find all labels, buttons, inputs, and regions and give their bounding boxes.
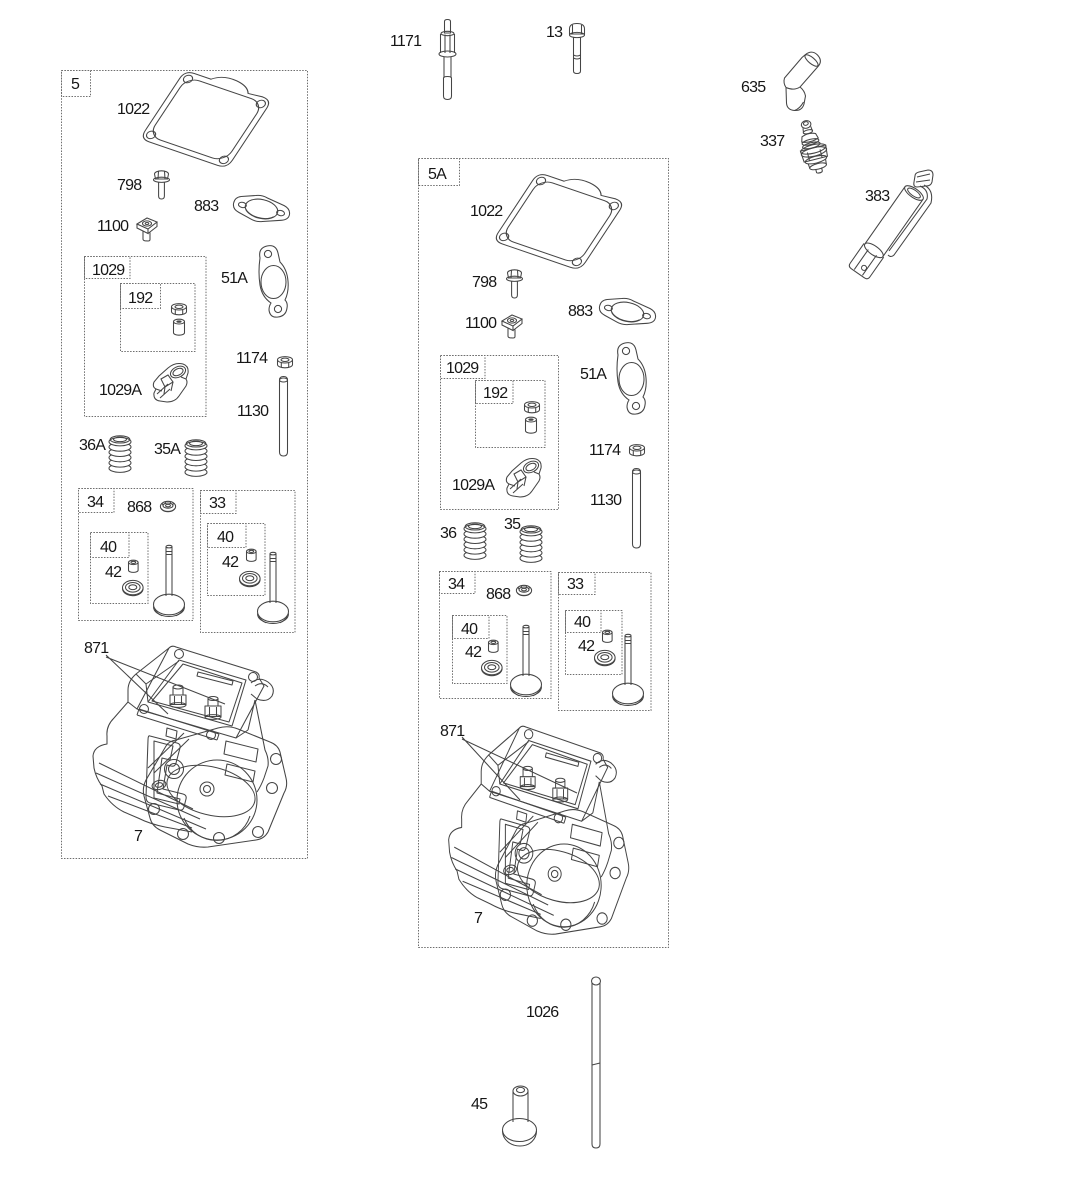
svg-text:1174: 1174 <box>236 350 268 367</box>
svg-text:1029A: 1029A <box>99 382 142 399</box>
svg-text:868: 868 <box>486 586 511 603</box>
svg-text:383: 383 <box>865 188 890 205</box>
svg-text:1174: 1174 <box>589 442 621 459</box>
svg-text:33: 33 <box>209 495 226 512</box>
svg-text:35: 35 <box>504 516 521 533</box>
svg-text:36: 36 <box>440 525 457 542</box>
svg-text:883: 883 <box>194 198 219 215</box>
svg-text:798: 798 <box>117 177 142 194</box>
svg-text:1029A: 1029A <box>452 477 495 494</box>
svg-text:1130: 1130 <box>237 403 269 420</box>
svg-text:35A: 35A <box>154 441 181 458</box>
svg-text:192: 192 <box>483 385 508 402</box>
svg-text:42: 42 <box>222 554 239 571</box>
svg-text:1100: 1100 <box>97 218 129 235</box>
svg-text:51A: 51A <box>221 270 248 287</box>
svg-text:51A: 51A <box>580 366 607 383</box>
svg-text:40: 40 <box>217 529 234 546</box>
svg-text:13: 13 <box>546 24 563 41</box>
svg-text:36A: 36A <box>79 437 106 454</box>
svg-text:40: 40 <box>461 621 478 638</box>
svg-text:40: 40 <box>574 614 591 631</box>
svg-text:5A: 5A <box>428 166 447 183</box>
svg-text:34: 34 <box>448 576 465 593</box>
svg-text:7: 7 <box>474 910 483 927</box>
svg-text:868: 868 <box>127 499 152 516</box>
svg-text:871: 871 <box>440 723 465 740</box>
svg-text:7: 7 <box>134 828 143 845</box>
svg-text:635: 635 <box>741 79 766 96</box>
svg-text:798: 798 <box>472 274 497 291</box>
svg-text:33: 33 <box>567 576 584 593</box>
svg-text:42: 42 <box>105 564 122 581</box>
svg-text:45: 45 <box>471 1096 488 1113</box>
svg-text:42: 42 <box>578 638 595 655</box>
svg-text:34: 34 <box>87 494 104 511</box>
svg-text:883: 883 <box>568 303 593 320</box>
svg-text:5: 5 <box>71 76 80 93</box>
svg-text:42: 42 <box>465 644 482 661</box>
svg-text:1171: 1171 <box>390 33 422 50</box>
svg-text:1022: 1022 <box>470 203 503 220</box>
svg-text:1029: 1029 <box>446 360 479 377</box>
svg-text:192: 192 <box>128 290 153 307</box>
svg-text:1029: 1029 <box>92 262 125 279</box>
svg-text:40: 40 <box>100 539 117 556</box>
svg-text:871: 871 <box>84 640 109 657</box>
svg-text:1022: 1022 <box>117 101 150 118</box>
svg-text:1026: 1026 <box>526 1004 559 1021</box>
svg-text:1130: 1130 <box>590 492 622 509</box>
svg-text:1100: 1100 <box>465 315 497 332</box>
svg-text:337: 337 <box>760 133 785 150</box>
